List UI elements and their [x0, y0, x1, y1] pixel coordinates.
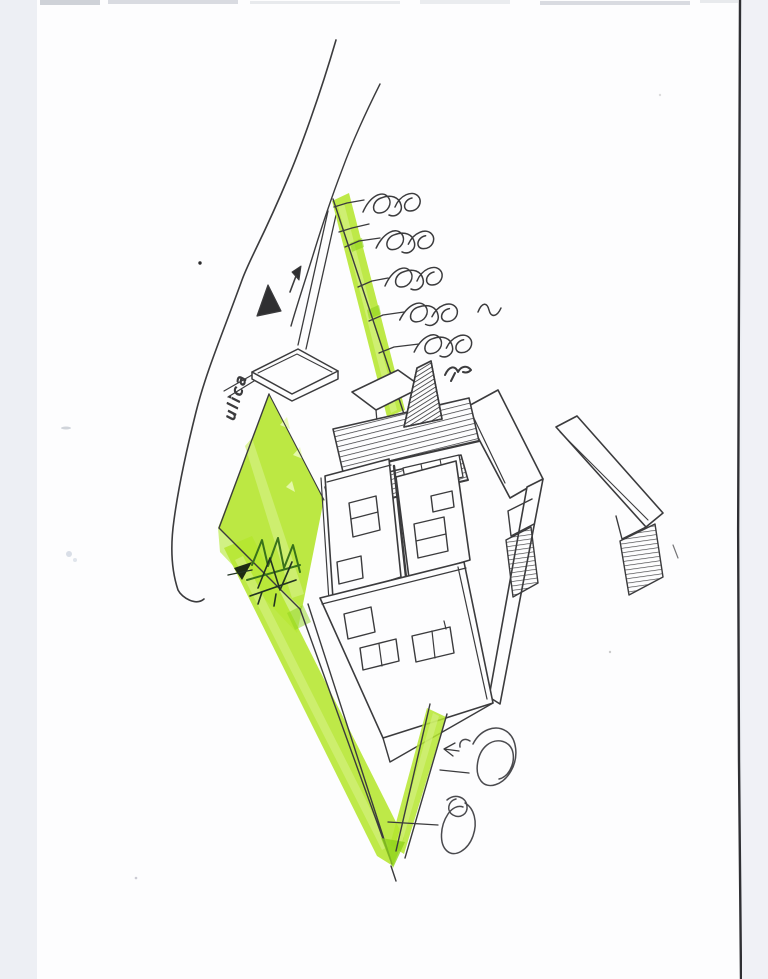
left-tower: [321, 459, 401, 601]
scan-margin-right: [742, 0, 768, 979]
sketch-canvas: ulica: [0, 0, 768, 979]
middle-tower: [396, 461, 470, 578]
scanned-sketch-page: ulica: [0, 0, 768, 979]
